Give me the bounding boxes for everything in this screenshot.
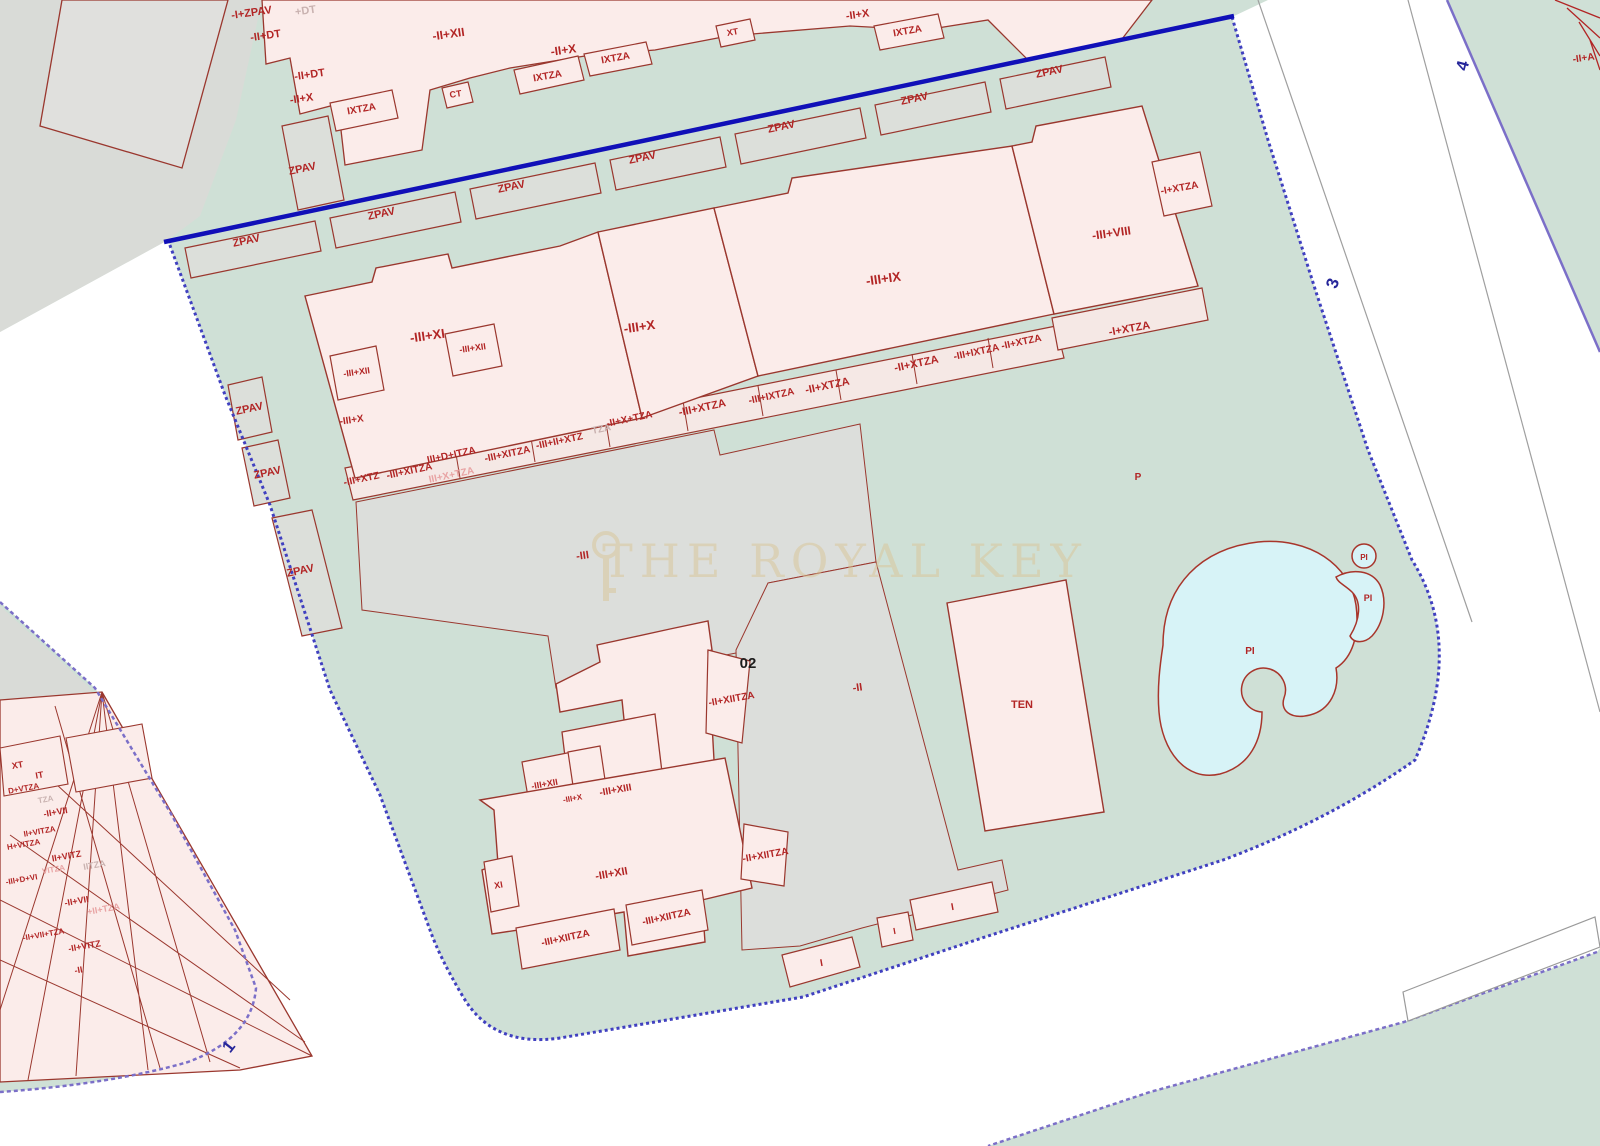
map-label: -II [852,681,863,694]
map-label: XT [726,26,740,38]
watermark-text: THE ROYAL KEY [602,534,1088,588]
map-label: -III [575,549,589,563]
cadastral-map: THE ROYAL KEY -I+ZPAV+DT-II+DT-II+DT-II+… [0,0,1600,1146]
watermark-key-tooth [606,588,616,593]
map-label: P [1135,472,1142,483]
map-label: PI [1245,646,1255,657]
map-label: XT [11,759,25,771]
map-label: PI [1360,553,1368,562]
map-label: TEN [1011,699,1033,711]
map-label: -II [74,964,84,975]
map-label: 02 [740,655,757,672]
map-label: CT [449,88,463,100]
map-label: XI [493,879,503,890]
map-label: PI [1364,593,1373,603]
